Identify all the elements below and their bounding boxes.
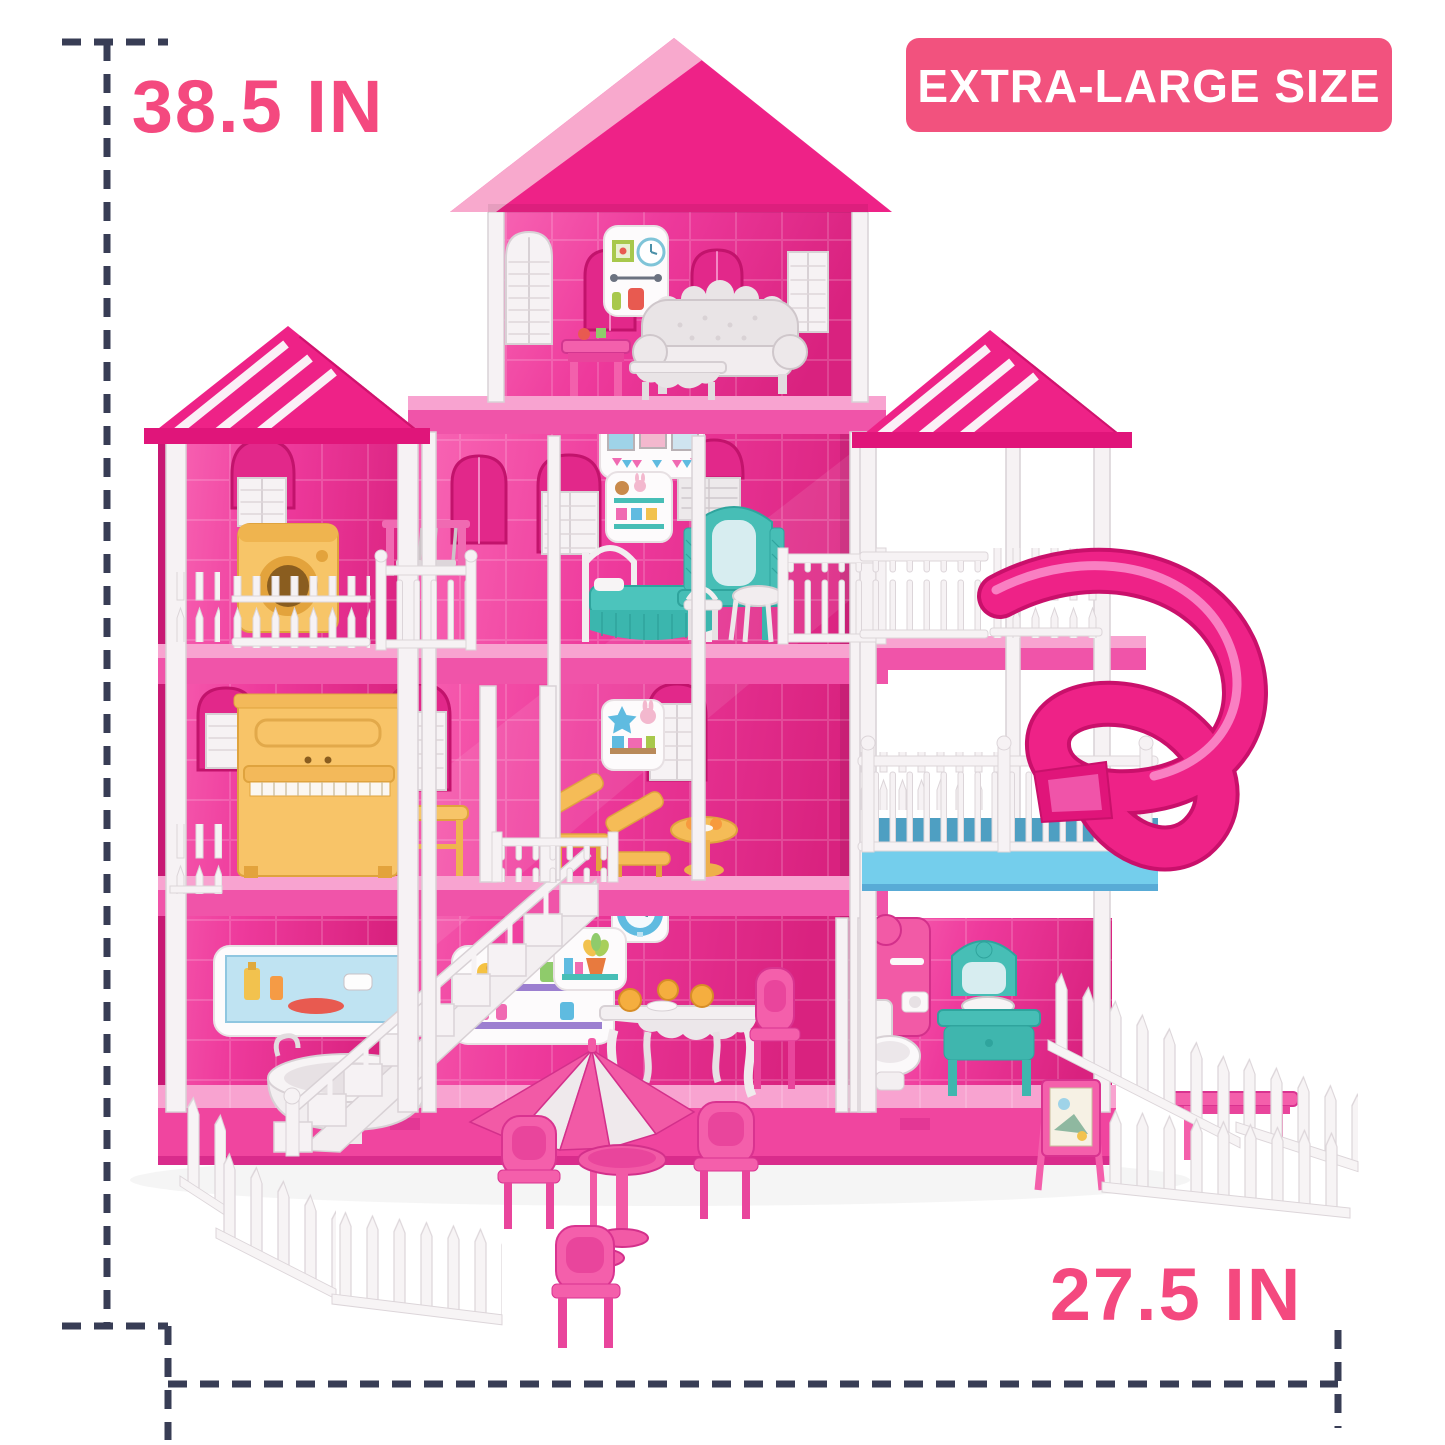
width-label: 27.5 IN [1050,1253,1303,1336]
window-arch-tower [232,440,294,526]
tower-balcony-railing [860,552,988,638]
size-badge: EXTRA-LARGE SIZE [906,38,1392,132]
floor2-left-picket [170,824,222,894]
piano [234,694,402,878]
patio-chair-front [552,1226,620,1348]
laundry-picket-fence [176,572,370,648]
window-shuttered-top-left [506,232,552,344]
sticker-star-shelf [602,700,664,770]
sticker-toy-shelf [606,472,672,542]
sticker-bath-shelf-large [214,946,412,1036]
patio-chair-left [498,1116,560,1229]
product-image: - girl's - R O O M [0,0,1445,1445]
fence-left-front [332,1204,502,1325]
dollhouse-illustration: - girl's - R O O M [0,0,1445,1445]
landing-railing [492,832,618,882]
right-roof [846,330,1160,472]
size-badge-label: EXTRA-LARGE SIZE [917,60,1380,112]
height-label: 38.5 IN [132,65,385,148]
